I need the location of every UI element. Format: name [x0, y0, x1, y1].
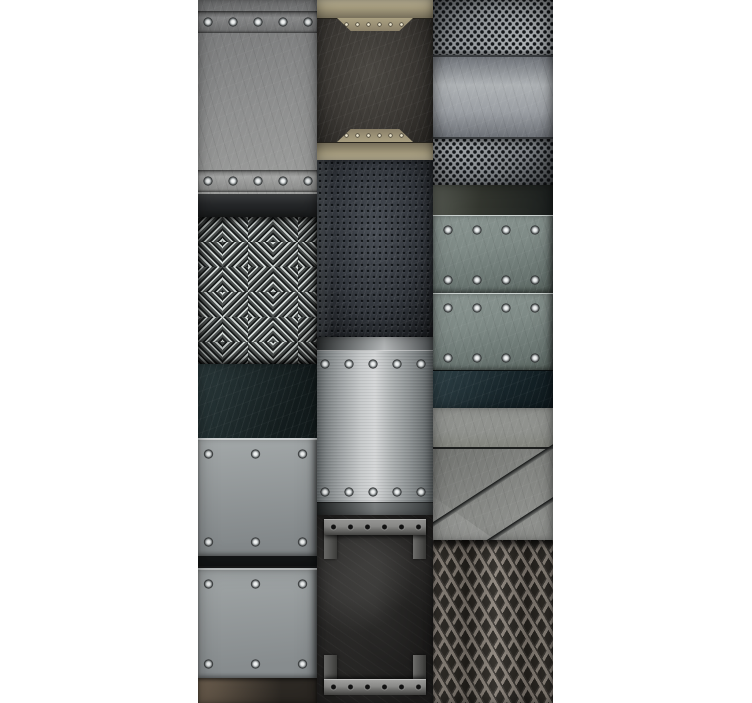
tile-expanded-metal-mesh	[433, 540, 553, 703]
tile-teal-panel-riveted-plate	[198, 364, 317, 566]
metal-texture-collage	[198, 0, 553, 703]
dark-teal-panel	[198, 364, 317, 440]
vignette-overlay	[198, 217, 317, 364]
bolt-hole-row	[324, 519, 426, 535]
tile-diamond-tread-plate	[198, 217, 317, 364]
tile-diagonal-metal-panels	[433, 408, 553, 540]
diagonal-panel-area	[433, 449, 553, 540]
collage-column-left	[198, 0, 317, 703]
tile-perforated-steel-band	[433, 0, 553, 185]
tile-perforated-dark-slate	[317, 160, 433, 337]
tab-rivet-row	[337, 18, 413, 31]
tan-tab	[337, 129, 413, 142]
tile-grunge-plaque-tan-frame	[317, 0, 433, 160]
bronze-footer-strip	[198, 678, 317, 703]
tile-riveted-steel-plate	[198, 0, 317, 217]
rivet-row	[317, 355, 433, 373]
rivet-row	[433, 299, 553, 317]
rivet-row	[198, 533, 317, 551]
rivet-row	[198, 655, 317, 673]
dark-gradient-band	[433, 185, 553, 216]
silver-plate	[198, 568, 317, 679]
silver-plate	[198, 438, 317, 557]
rivet-row	[317, 483, 433, 501]
page	[0, 0, 752, 703]
steel-plate	[433, 293, 553, 371]
panel-highlight	[433, 449, 553, 540]
rivet-row	[198, 575, 317, 593]
tan-tab	[337, 18, 413, 31]
dark-teal-band	[433, 370, 553, 408]
plate-edge-bar	[317, 502, 433, 515]
clamp-bar	[324, 679, 426, 695]
horizontal-panel	[433, 408, 553, 449]
rivet-band	[198, 170, 317, 192]
tan-band	[317, 0, 433, 19]
tab-rivet-row	[337, 129, 413, 142]
dark-edge-strip	[198, 556, 317, 566]
rivet-row	[198, 445, 317, 463]
rivet-row	[433, 271, 553, 289]
tile-riveted-silver-plate	[198, 566, 317, 703]
dark-edge-strip	[198, 194, 317, 217]
clamp-bar	[324, 519, 426, 535]
tan-band	[317, 142, 433, 160]
steel-plate	[433, 215, 553, 293]
vignette-overlay	[433, 0, 553, 185]
tile-brushed-aluminum-plate	[317, 337, 433, 515]
collage-column-right	[433, 0, 553, 703]
rivet-row	[198, 13, 317, 31]
perforation-dots	[317, 160, 433, 337]
rivet-row	[433, 221, 553, 239]
rivet-row	[198, 172, 317, 190]
rivet-band	[198, 11, 317, 33]
sheen-overlay	[433, 540, 553, 703]
tile-blue-steel-riveted-plates	[433, 185, 553, 408]
rivet-row	[433, 349, 553, 367]
plate-edge-bar	[317, 337, 433, 351]
bolt-hole-row	[324, 679, 426, 695]
tile-grunge-clamp-door	[317, 515, 433, 703]
collage-column-middle	[317, 0, 433, 703]
